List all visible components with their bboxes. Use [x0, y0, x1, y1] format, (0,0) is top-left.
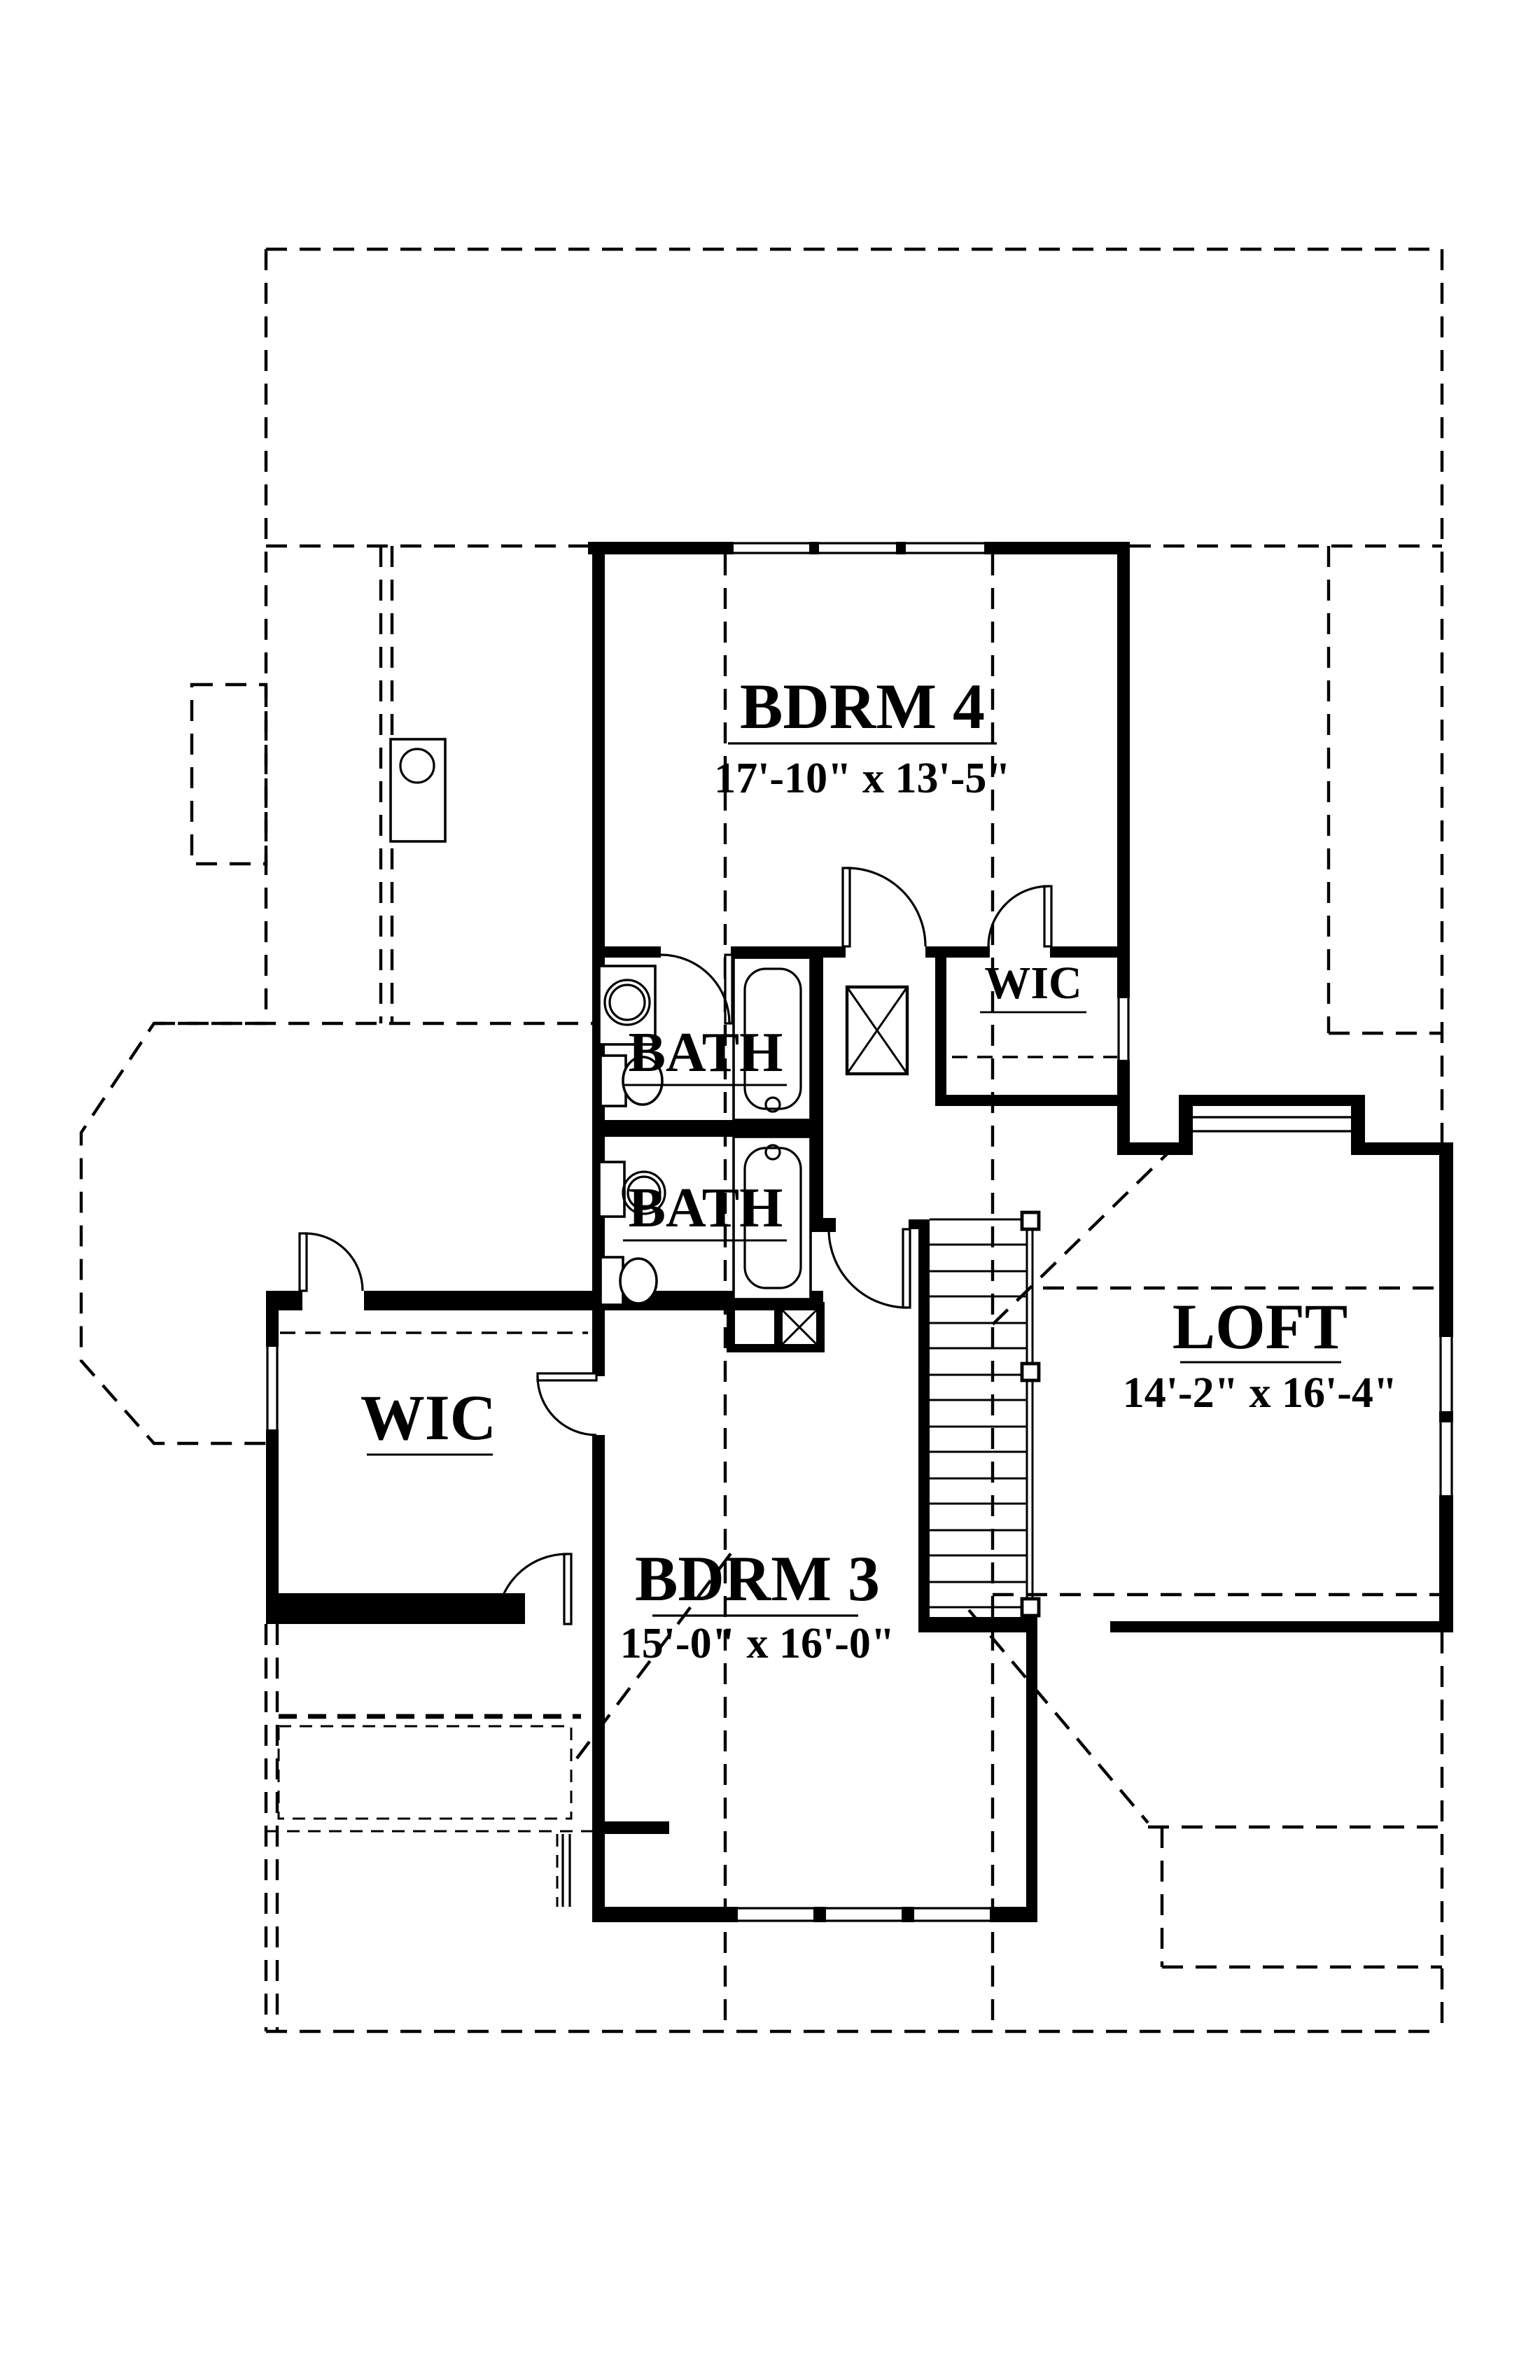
loft-bump-window [1193, 1106, 1351, 1142]
room-label-bdrm3: BDRM 3 [635, 1543, 880, 1614]
newel-post [1022, 1364, 1039, 1380]
water-heater [391, 739, 445, 841]
room-label-bdrm4: BDRM 4 [740, 671, 985, 742]
room-label-bath-lower: BATH [629, 1177, 783, 1239]
room-dims-bdrm3: 15'-0" x 16'-0" [620, 1620, 895, 1667]
room-label-loft: LOFT [1172, 1291, 1347, 1362]
door-wic-left [538, 1373, 596, 1435]
chimney-outline [192, 685, 266, 864]
vanity-lower [599, 1162, 624, 1217]
room-label-bath-upper: BATH [629, 1022, 783, 1084]
floor-plan-canvas: BDRM 4 17'-10" x 13'-5" WIC BATH BATH WI… [0, 0, 1540, 2380]
room-label-wic-upper: WIC [984, 958, 1081, 1009]
door-bath-upper [661, 955, 732, 1023]
attic-storage-outline [266, 1716, 592, 1907]
attic-hatch [847, 987, 907, 1074]
bdrm3-windows [738, 1908, 990, 1921]
bdrm4-windows [734, 543, 984, 553]
room-labels: BDRM 4 17'-10" x 13'-5" WIC BATH BATH WI… [360, 671, 1397, 1667]
wic-upper-window [1119, 998, 1128, 1060]
wic-left-window [267, 1347, 277, 1429]
door-attic-access-wic-left [300, 1233, 363, 1291]
room-dims-loft: 14'-2" x 16'-4" [1123, 1369, 1398, 1417]
room-label-wic-left: WIC [360, 1382, 496, 1453]
floor-plan-page: BDRM 4 17'-10" x 13'-5" WIC BATH BATH WI… [0, 0, 1540, 2380]
door-wic-upper [988, 886, 1051, 946]
door-bdrm3-hall [829, 1229, 910, 1308]
room-dims-bdrm4: 17'-10" x 13'-5" [714, 755, 1011, 802]
door-bdrm4 [843, 868, 925, 946]
newel-post [1022, 1212, 1039, 1229]
bay-window-outline [81, 1023, 279, 1443]
newel-post [1022, 1599, 1039, 1616]
toilet-bowl-lower [620, 1259, 657, 1303]
staircase [930, 1212, 1039, 1616]
